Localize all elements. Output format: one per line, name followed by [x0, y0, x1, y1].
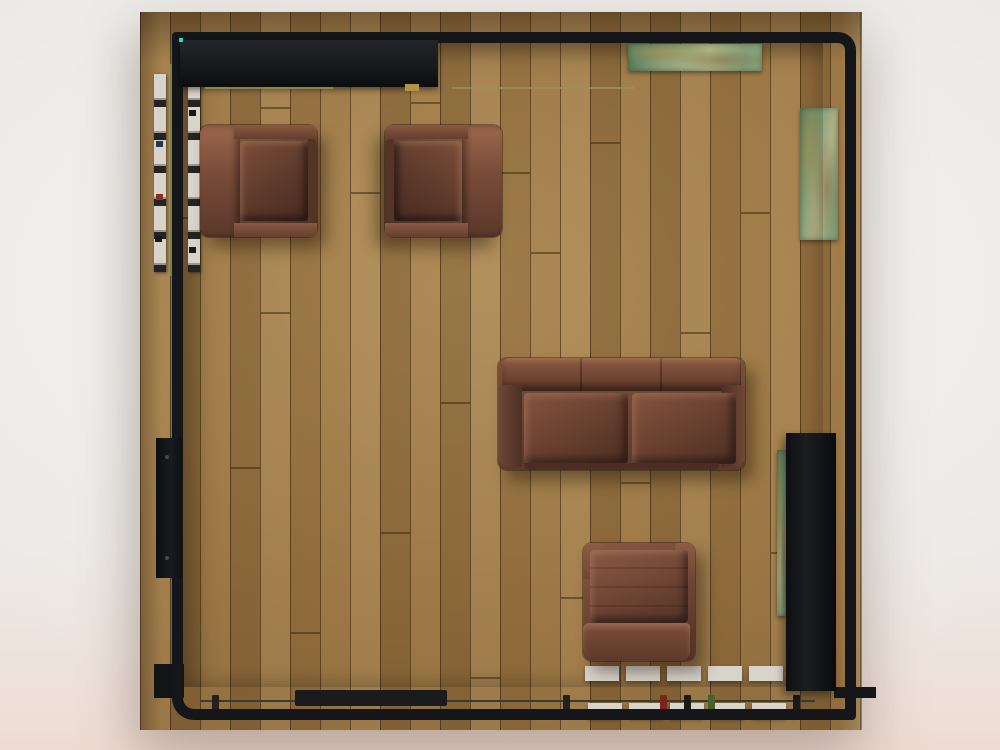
plank-joint	[471, 677, 500, 679]
chair-cushion	[240, 141, 308, 221]
railing-post	[684, 695, 691, 711]
beam-extension-right	[834, 687, 876, 698]
chair-arm-top	[385, 125, 468, 139]
sofa-cushion-left	[524, 393, 628, 464]
railing-post	[793, 695, 800, 711]
baluster-row-inner	[585, 666, 791, 681]
plank-joint	[291, 632, 320, 634]
railing-rail-lower	[200, 711, 815, 713]
scaffold-speck	[156, 194, 163, 200]
plank-joint	[501, 172, 530, 174]
railing-post	[708, 695, 715, 711]
patina-bench-top	[628, 44, 762, 71]
teal-marker	[179, 38, 183, 42]
plank-joint	[351, 192, 380, 194]
chair-back	[200, 125, 240, 237]
armchair-top-right	[385, 125, 502, 237]
chair-front-edge	[385, 139, 394, 223]
black-counter-top-left	[180, 40, 438, 87]
plank-joint	[261, 312, 290, 314]
render-stage	[0, 0, 1000, 750]
black-panel-right	[786, 433, 836, 691]
scaffold-speck	[189, 247, 196, 253]
chair-arm-bottom	[234, 223, 317, 237]
patina-panel-right	[800, 108, 838, 240]
patina-strip-right	[777, 450, 786, 616]
railing-post	[660, 695, 667, 711]
scaffold-speck	[189, 110, 196, 116]
armchair-top-left	[200, 125, 317, 237]
sofa-back	[502, 358, 741, 391]
chair-backrest	[590, 550, 688, 623]
plank-joint	[741, 212, 770, 214]
plank-joint	[441, 402, 470, 404]
chair-back	[462, 125, 502, 237]
chair-arm-bottom	[385, 223, 468, 237]
shelf-edge-accent-left	[205, 87, 333, 89]
armchair-bottom	[583, 543, 695, 661]
railing-rail-upper	[200, 700, 815, 702]
sofa-arm-left	[498, 385, 522, 467]
plank-joint	[591, 142, 620, 144]
hinge-dot-bottom	[165, 556, 169, 560]
shelf-edge-accent-right	[452, 87, 634, 89]
plank-joint	[231, 467, 260, 469]
plank-joint	[381, 532, 410, 534]
sofa-cushion-right	[632, 393, 736, 464]
trim-line-left	[170, 64, 172, 276]
threshold-step	[295, 690, 447, 706]
scaffold-speck	[155, 236, 162, 242]
plank-joint	[621, 482, 650, 484]
chair-arm-top	[234, 125, 317, 139]
scaffold-speck	[156, 141, 163, 147]
scaffold-strip-inner	[188, 74, 200, 272]
sofa-loveseat	[498, 358, 745, 470]
railing-post	[212, 695, 219, 711]
gold-chip	[405, 84, 419, 91]
plank-joint	[681, 332, 710, 334]
door-panel-left	[156, 438, 182, 578]
hinge-dot-top	[165, 455, 169, 459]
plank-joint	[261, 107, 290, 109]
chair-front-edge	[308, 139, 317, 223]
chair-seat	[583, 623, 690, 661]
sofa-front-edge	[524, 463, 719, 470]
wall-chunk-bottom-left	[154, 664, 184, 698]
scaffold-strip-outer	[154, 74, 166, 272]
chair-cushion	[394, 141, 462, 221]
plank-joint	[531, 252, 560, 254]
railing-post	[563, 695, 570, 711]
plank-joint	[411, 102, 440, 104]
